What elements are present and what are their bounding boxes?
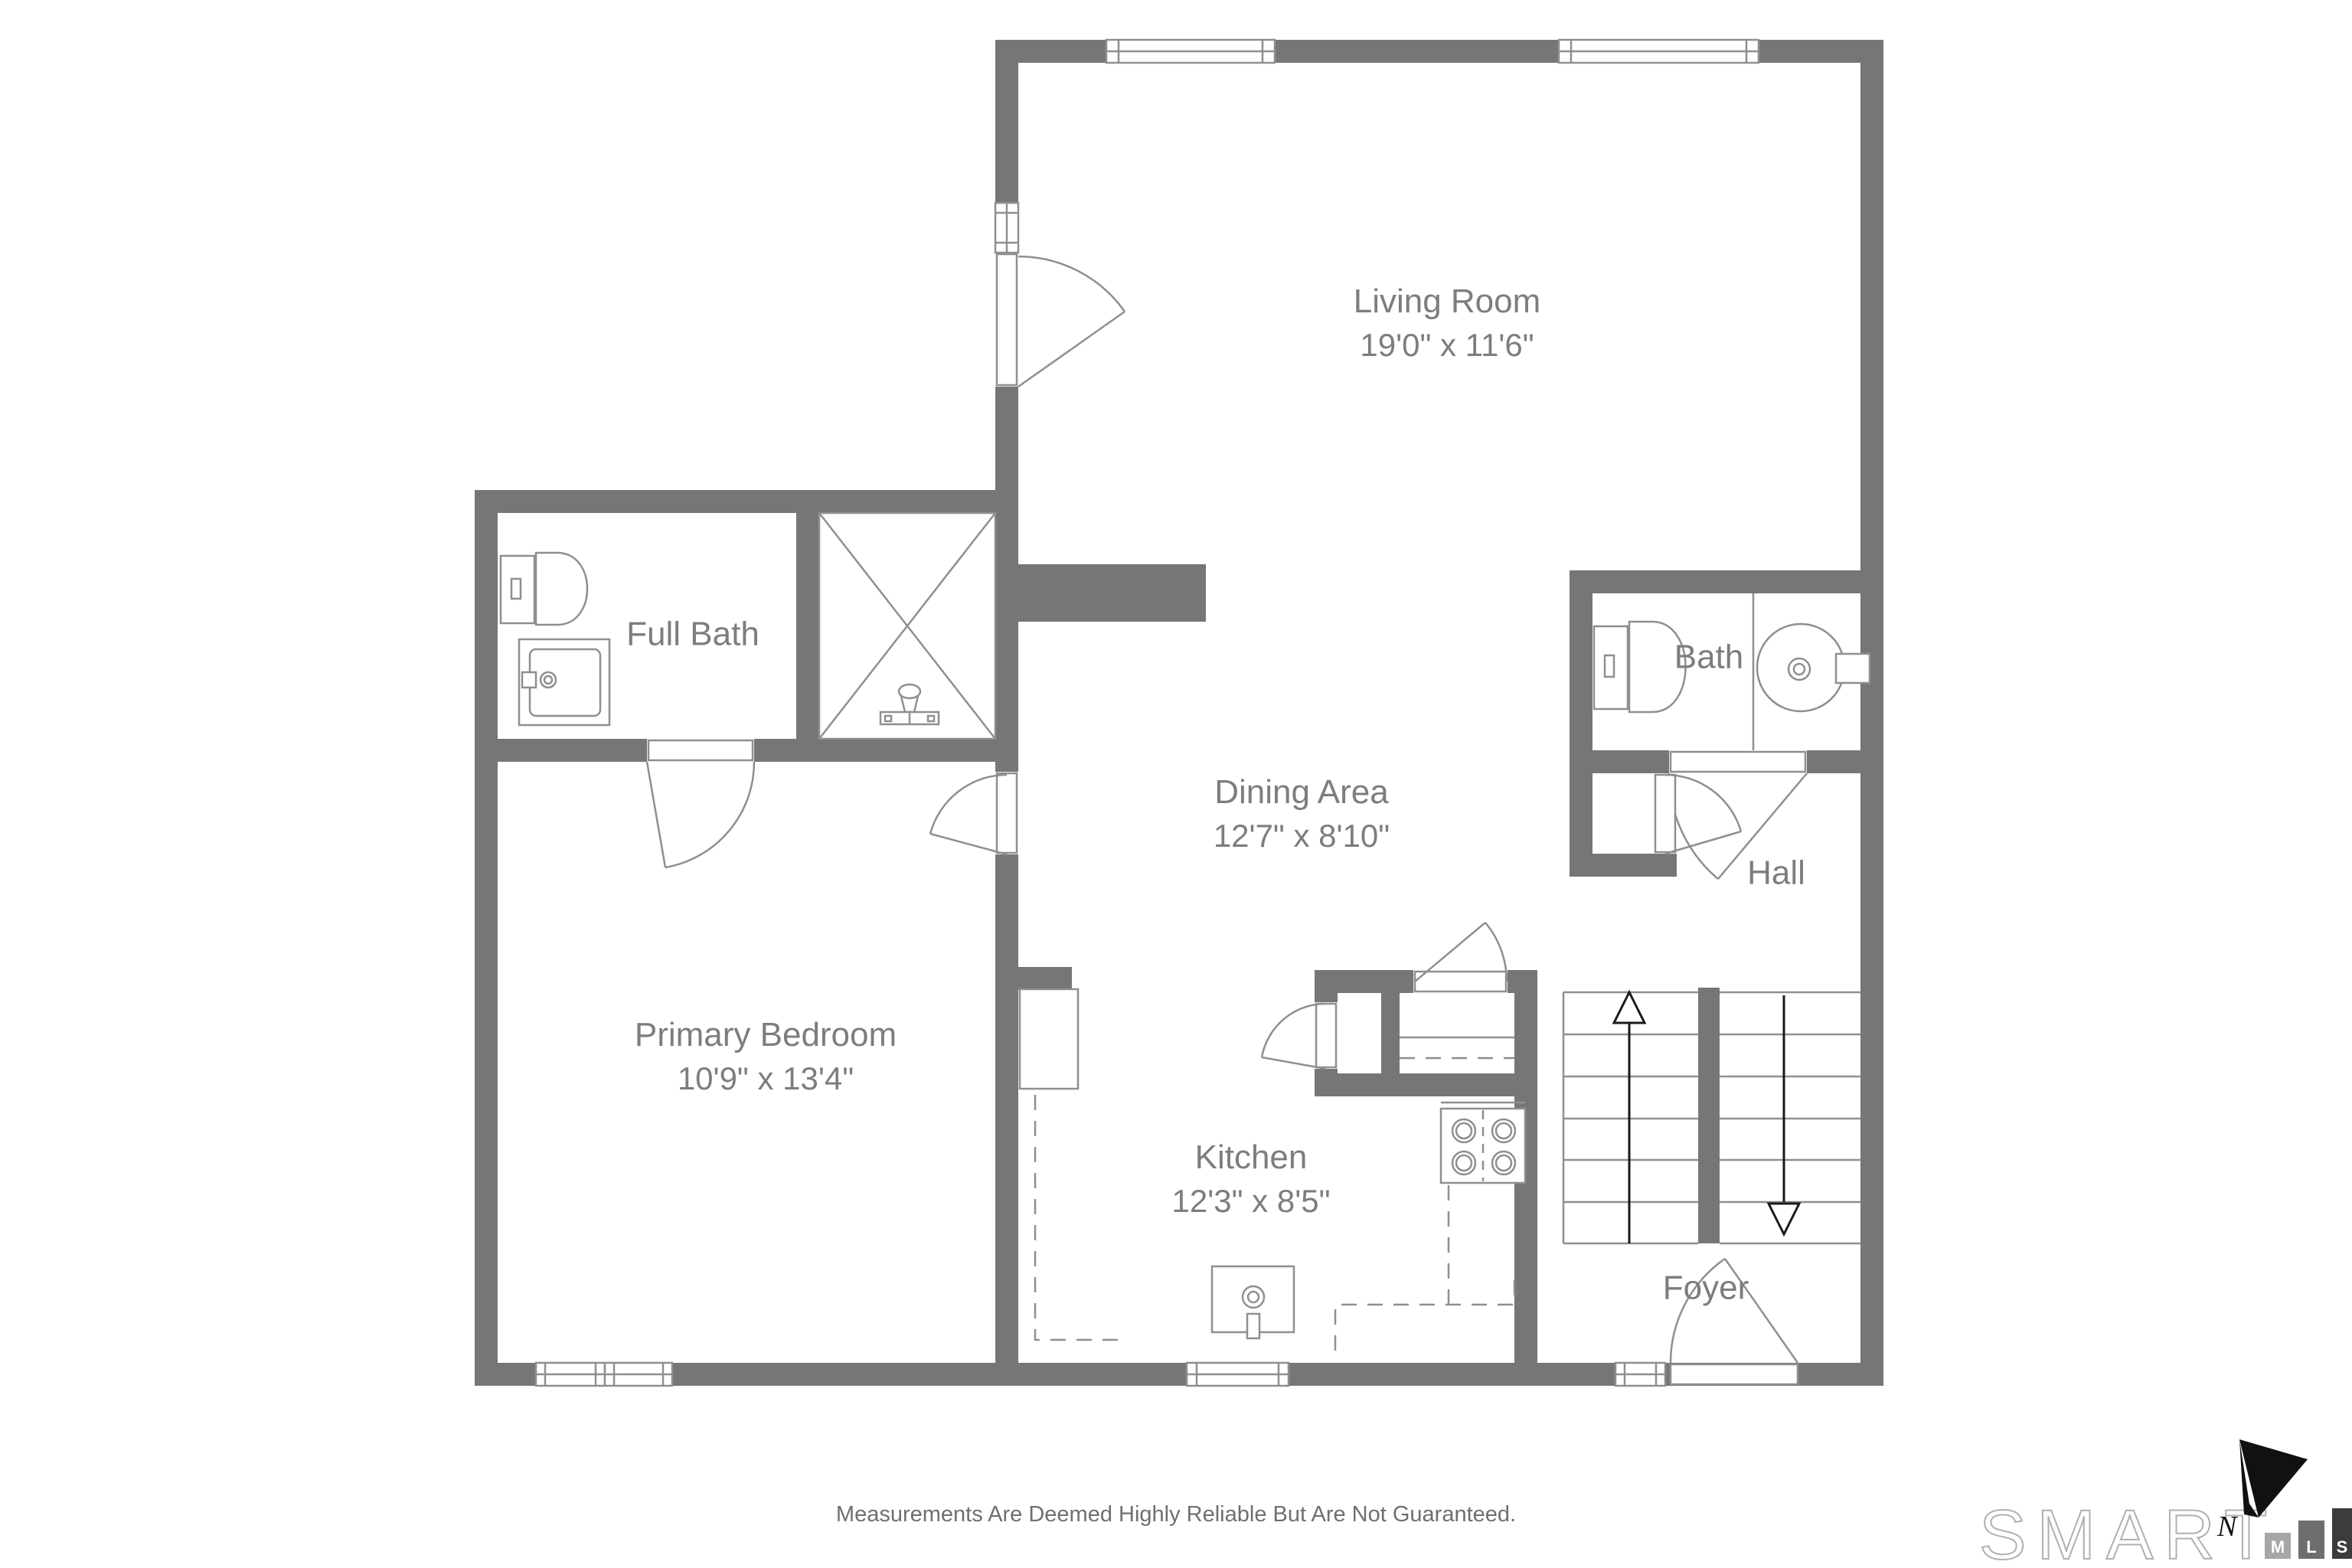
room-label-primary-bedroom: Primary Bedroom 10'9" x 13'4" [635, 1013, 897, 1100]
wall-left [475, 490, 498, 1386]
door-bedroom-dining [930, 773, 1017, 854]
logo-s-letter: S [2337, 1537, 2348, 1557]
room-label-dining-area: Dining Area 12'7" x 8'10" [1214, 770, 1390, 857]
fullbath-fixtures [501, 553, 609, 725]
wall-fullbath-bottom-left [475, 739, 647, 762]
window-bedroom-2 [605, 1363, 672, 1386]
wall-center-2 [995, 387, 1018, 772]
wall-bath-top [475, 490, 995, 513]
wall-right [1860, 40, 1883, 1386]
floor-plan: SMART M L S N [0, 0, 2352, 1568]
wall-pantry-divider [1381, 993, 1400, 1073]
round-sink-icon [1757, 624, 1870, 711]
wall-center-1 [995, 40, 1018, 203]
shower-icon [819, 513, 995, 739]
wall-pantry-left-a [1315, 970, 1338, 1002]
wall-closet-bottom [1570, 854, 1677, 877]
door-pantry-left [1262, 1004, 1336, 1069]
stove-icon [1441, 1102, 1525, 1183]
room-label-hall: Hall [1747, 851, 1805, 895]
wall-stub [1018, 564, 1206, 622]
foyer-name: Foyer [1663, 1266, 1749, 1310]
window-living-2 [1559, 40, 1759, 63]
fridge-icon [1020, 989, 1078, 1089]
wall-bath2-bottom-right [1807, 750, 1860, 773]
disclaimer-text: Measurements Are Deemed Highly Reliable … [0, 1502, 2352, 1527]
wall-bath2-left [1570, 570, 1592, 773]
room-label-kitchen: Kitchen 12'3" x 8'5" [1172, 1135, 1331, 1223]
window-bedroom-1 [536, 1363, 605, 1386]
wall-stairs-divider [1698, 988, 1720, 1243]
primary-bedroom-name: Primary Bedroom [635, 1013, 897, 1057]
hall-name: Hall [1747, 851, 1805, 895]
toilet-icon [501, 553, 587, 625]
room-label-full-bath: Full Bath [626, 612, 759, 656]
door-hall-closet [1655, 775, 1741, 854]
stairs-down-arrow [1769, 995, 1799, 1234]
dining-area-name: Dining Area [1214, 770, 1390, 814]
wall-kitchen-stub [1018, 967, 1072, 990]
window-kitchen [1187, 1363, 1289, 1386]
wall-bath2-bottom-left [1570, 750, 1669, 773]
toilet2-icon [1594, 622, 1686, 712]
bath-name: Bath [1674, 635, 1744, 679]
door-pantry-top [1415, 923, 1507, 991]
room-label-living-room: Living Room 19'0" x 11'6" [1354, 279, 1541, 367]
counter-bottom-dashed [1335, 1269, 1514, 1351]
vanity-sink-icon [519, 639, 609, 725]
dining-area-dims: 12'7" x 8'10" [1214, 814, 1390, 857]
kitchen-sink-icon [1212, 1266, 1294, 1338]
room-label-foyer: Foyer [1663, 1266, 1749, 1310]
kitchen-name: Kitchen [1172, 1135, 1331, 1179]
living-room-name: Living Room [1354, 279, 1541, 323]
wall-shower [796, 513, 819, 762]
logo-m-letter: M [2271, 1537, 2285, 1557]
counter-left-dashed [1035, 1095, 1119, 1340]
wall-fullbath-bottom-right [754, 739, 995, 762]
room-label-bath: Bath [1674, 635, 1744, 679]
logo-l-letter: L [2306, 1537, 2316, 1557]
door-living-left [997, 254, 1125, 387]
wall-center-3 [995, 854, 1018, 1363]
window-living-1 [1106, 40, 1275, 63]
wall-bath2-top [1570, 570, 1860, 593]
door-bedroom-bath [647, 740, 754, 867]
living-room-dims: 19'0" x 11'6" [1354, 323, 1541, 367]
window-living-left [995, 203, 1018, 253]
wall-pantry-bottom [1315, 1073, 1537, 1096]
window-foyer [1615, 1363, 1665, 1386]
floorplan-page: SMART M L S N Living Room 19'0" x 11'6" … [0, 0, 2352, 1568]
full-bath-name: Full Bath [626, 612, 759, 656]
kitchen-dims: 12'3" x 8'5" [1172, 1179, 1331, 1223]
primary-bedroom-dims: 10'9" x 13'4" [635, 1057, 897, 1100]
